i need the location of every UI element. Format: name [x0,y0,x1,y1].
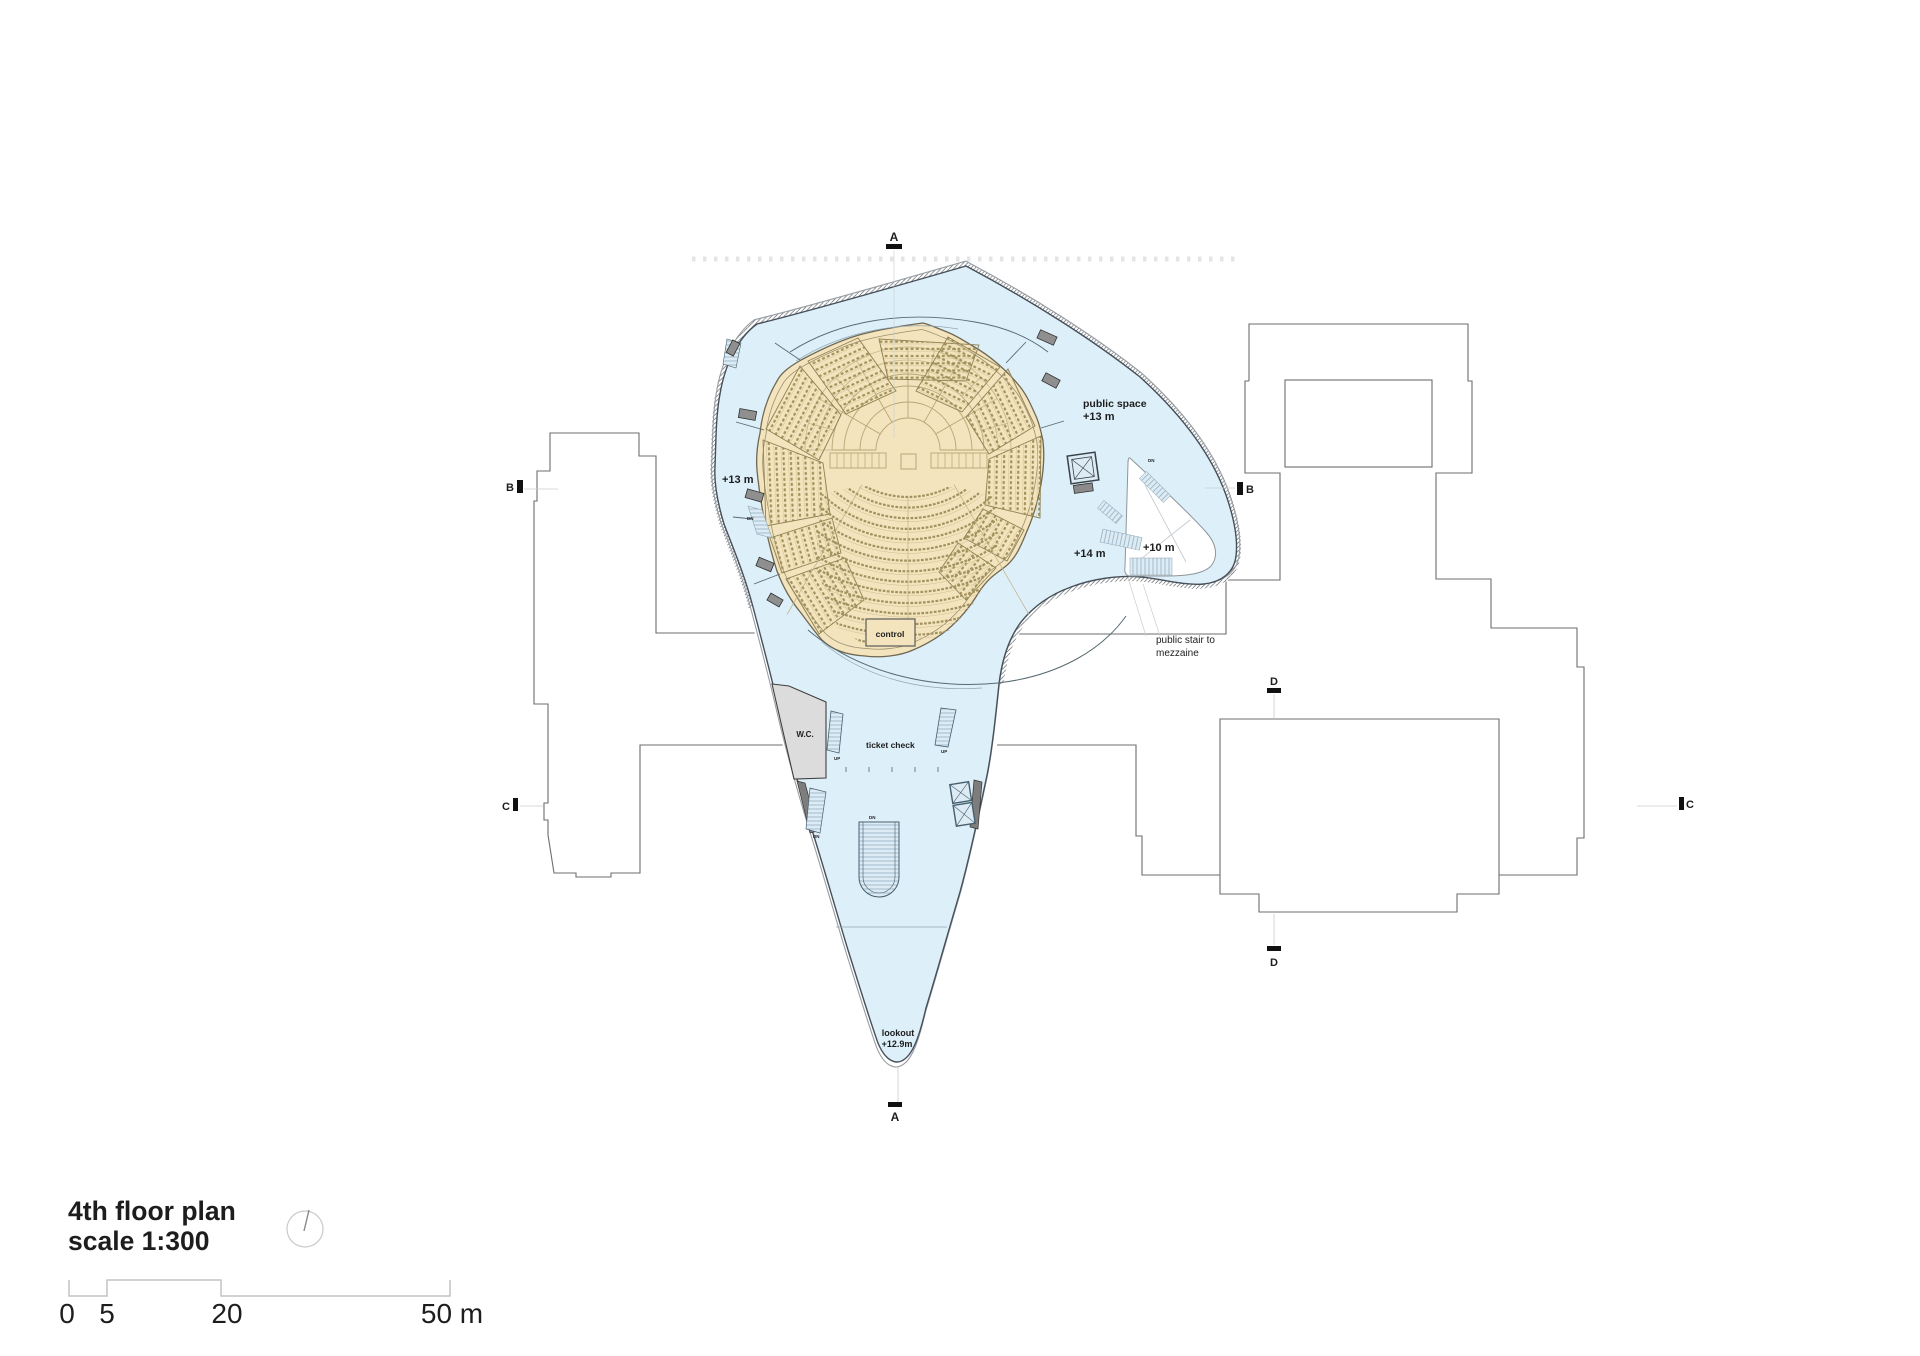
svg-text:C: C [502,801,510,813]
svg-text:DN: DN [747,516,754,521]
svg-text:public stair to: public stair to [1156,635,1215,646]
svg-text:DN: DN [813,834,820,839]
svg-text:DN: DN [869,815,876,820]
svg-text:control: control [876,629,905,639]
svg-text:A: A [890,230,899,244]
svg-text:D: D [1270,957,1278,969]
svg-text:20: 20 [211,1298,242,1329]
svg-text:+13 m: +13 m [1083,411,1115,423]
svg-text:50 m: 50 m [421,1298,483,1329]
svg-text:0: 0 [59,1298,75,1329]
svg-text:4th floor plan: 4th floor plan [68,1196,236,1226]
svg-text:lookout: lookout [882,1028,915,1038]
svg-text:UP: UP [834,756,840,761]
svg-text:scale 1:300: scale 1:300 [68,1226,209,1256]
svg-text:+10 m: +10 m [1143,542,1175,554]
svg-text:W.C.: W.C. [796,730,813,739]
svg-text:D: D [1270,676,1278,688]
svg-text:+13 m: +13 m [722,474,754,486]
svg-text:UP: UP [941,749,947,754]
svg-text:mezzaine: mezzaine [1156,648,1199,659]
svg-text:+14 m: +14 m [1074,548,1106,560]
svg-text:DN: DN [1148,458,1155,463]
svg-text:B: B [506,482,514,494]
svg-text:ticket check: ticket check [866,740,915,750]
svg-text:C: C [1686,799,1694,811]
svg-text:5: 5 [99,1298,115,1329]
svg-text:B: B [1246,484,1254,496]
svg-text:+12.9m: +12.9m [882,1039,913,1049]
svg-text:A: A [891,1110,900,1124]
svg-text:public space: public space [1083,398,1147,410]
